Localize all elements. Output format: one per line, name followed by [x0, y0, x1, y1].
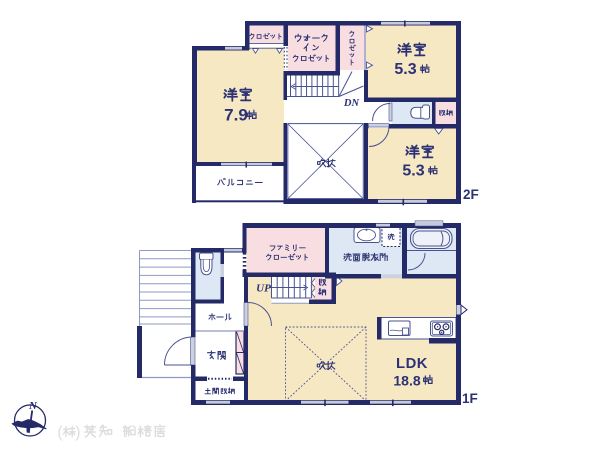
svg-text:): )	[75, 424, 80, 441]
svg-text:5.3: 5.3	[402, 163, 424, 180]
svg-text:5.3: 5.3	[394, 61, 416, 78]
svg-text:DN: DN	[343, 98, 360, 109]
svg-text:UP: UP	[256, 283, 271, 295]
svg-text:18.8: 18.8	[393, 373, 420, 389]
svg-text:LDK: LDK	[396, 356, 428, 372]
svg-text:N: N	[28, 400, 38, 412]
svg-text:1F: 1F	[462, 391, 478, 406]
svg-text:(: (	[57, 424, 63, 441]
svg-text:2F: 2F	[463, 187, 479, 202]
svg-text:7.9: 7.9	[224, 106, 248, 125]
